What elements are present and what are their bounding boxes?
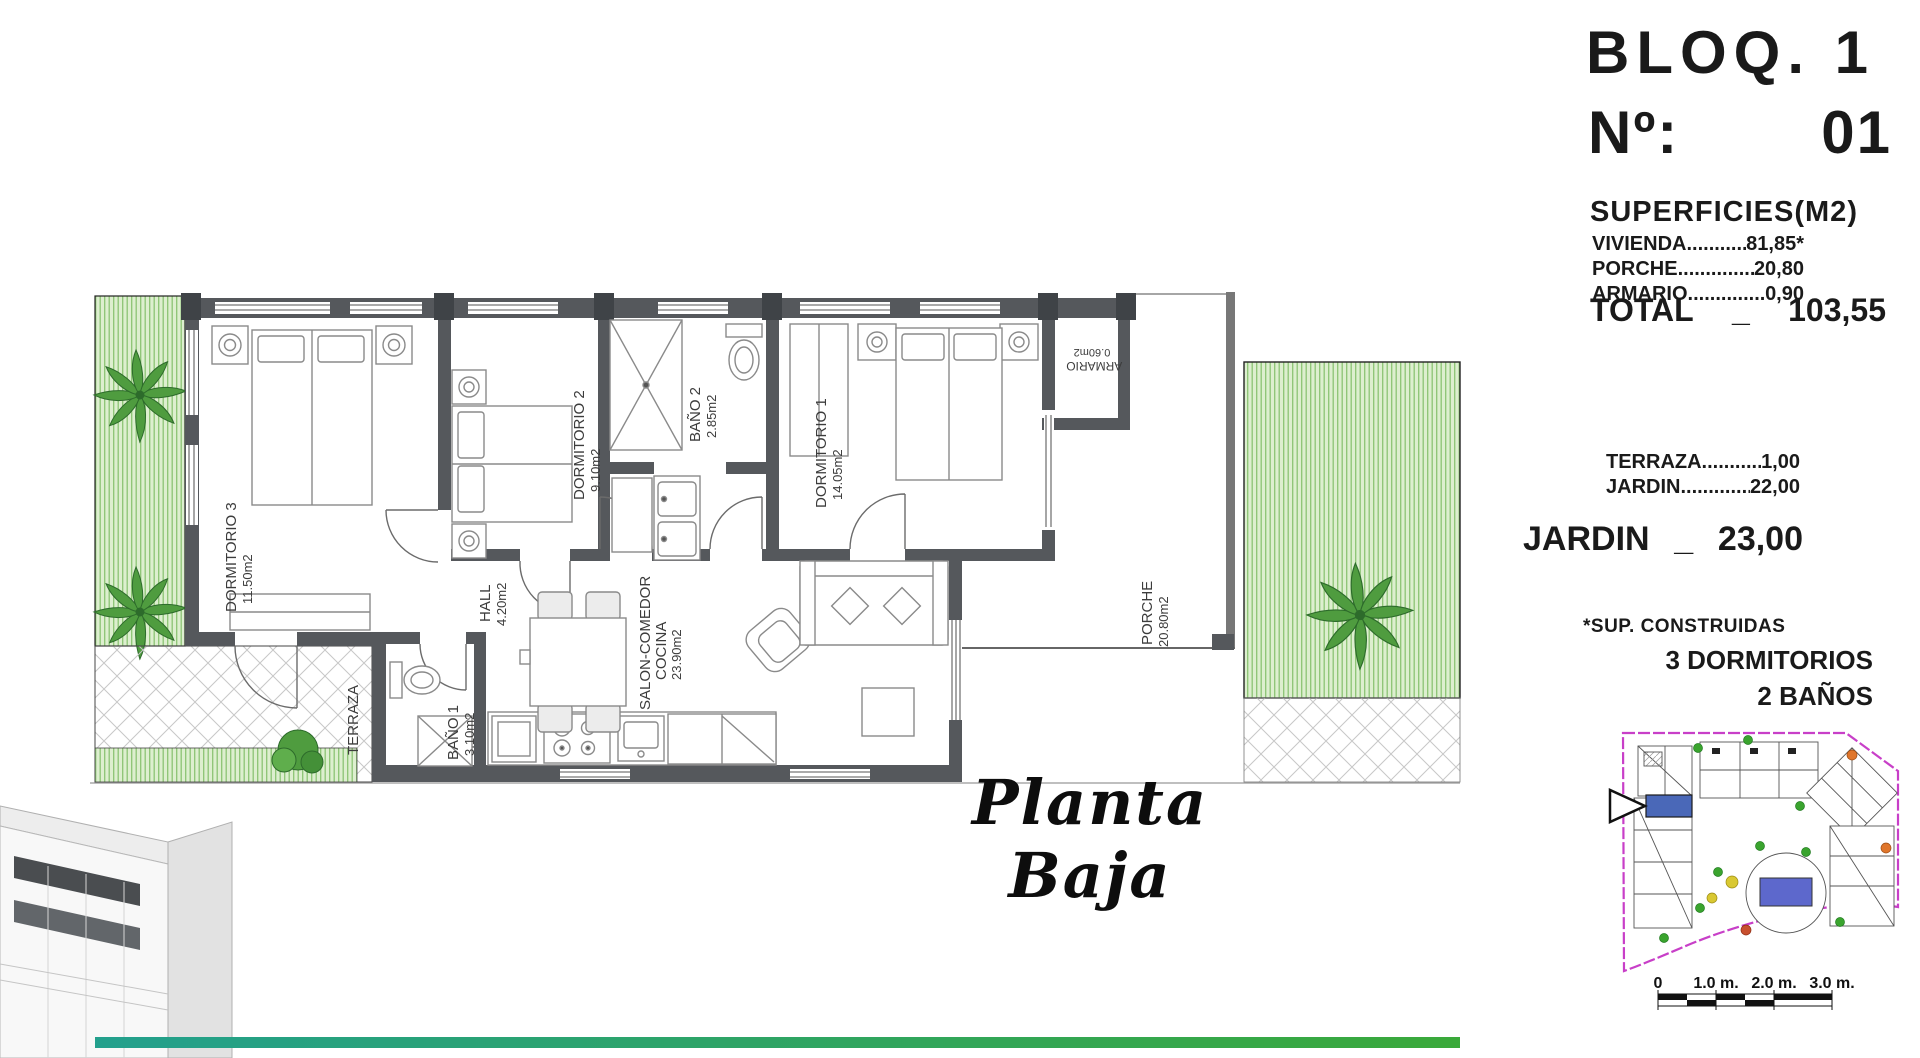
left-garden [94,296,186,659]
vanity-double-sink [612,476,700,560]
dot-leader: ........................................… [1678,258,1754,281]
current-unit-highlight [1646,795,1692,817]
unit-number-label: Nº: [1588,98,1679,167]
jardin-total-row: JARDIN _ 23,00 [1523,520,1803,559]
unit-number-row: Nº: 01 [1588,98,1892,167]
site-plan [1610,733,1898,971]
right-garden [1244,362,1460,782]
exterior-table: TERRAZA ................................… [1606,451,1800,501]
row-value: 81,85* [1746,233,1804,256]
row-label: PORCHE [1592,258,1678,281]
terraza-paving [95,646,372,782]
room-label-armario: ARMARIO 0.60m2 [1062,346,1122,375]
table-row: TERRAZA ................................… [1606,451,1800,476]
bathrooms-note: 2 BAÑOS [1583,681,1873,712]
row-value: 1,00 [1761,451,1800,474]
table-row: PORCHE .................................… [1592,258,1804,283]
porch-edge-wall [1226,292,1235,648]
block-title: BLOQ. 1 [1586,18,1875,87]
room-label-salon: SALON-COMEDOR COCINA 23.90m2 [637,571,684,710]
room-label-terraza: TERRAZA [345,685,362,755]
scale-tick-label: 3.0 m. [1809,975,1854,992]
room-label-bano1: BAÑO 1 3.10m2 [445,701,477,760]
scale-tick-label: 0 [1654,975,1663,992]
table-row: JARDIN .................................… [1606,476,1800,501]
dot-leader: ........................................… [1680,476,1749,499]
bano2-fixtures [610,320,762,450]
room-label-bano2: BAÑO 2 2.85m2 [687,383,719,442]
total-separator: _ [1674,520,1693,559]
footer-bar [95,1037,1460,1048]
total-value: 103,55 [1788,292,1886,329]
row-label: VIVIENDA [1592,233,1686,256]
building-render [0,806,232,1058]
total-label: TOTAL [1590,292,1694,329]
dot-leader: ........................................… [1702,451,1762,474]
pool [1760,878,1812,906]
total-value: 23,00 [1718,520,1803,559]
room-label-hall: HALL 4.20m2 [477,580,509,626]
row-label: JARDIN [1606,476,1680,499]
coffee-table [862,688,914,736]
dining-table [520,592,626,732]
row-value: 22,00 [1750,476,1800,499]
bedrooms-note: 3 DORMITORIOS [1583,645,1873,676]
dormitorio2-bed [452,370,572,558]
total-label: JARDIN [1523,520,1650,559]
constructed-surface-footnote: *SUP. CONSTRUIDAS [1583,616,1785,638]
porch-column [1212,634,1234,650]
row-value: 20,80 [1754,258,1804,281]
dot-leader: ........................................… [1686,233,1746,256]
scale-tick-label: 1.0 m. [1693,975,1738,992]
unit-number-value: 01 [1821,98,1892,167]
scale-tick-label: 2.0 m. [1751,975,1796,992]
scale-bar: 0 1.0 m. 2.0 m. 3.0 m. [1654,975,1855,1010]
kitchen-counter [488,712,776,765]
plan-title: Planta Baja [880,766,1300,912]
surfaces-total-row: TOTAL _ 103,55 [1590,292,1886,329]
surfaces-title: SUPERFICIES(M2) [1590,196,1858,229]
row-label: TERRAZA [1606,451,1702,474]
sofa [800,561,948,645]
room-label-porche: PORCHE 20.80m2 [1139,576,1171,647]
table-row: VIVIENDA ...............................… [1592,233,1804,258]
room-label-dormitorio3: DORMITORIO 3 11.50m2 [223,498,255,612]
total-separator: _ [1732,292,1750,329]
